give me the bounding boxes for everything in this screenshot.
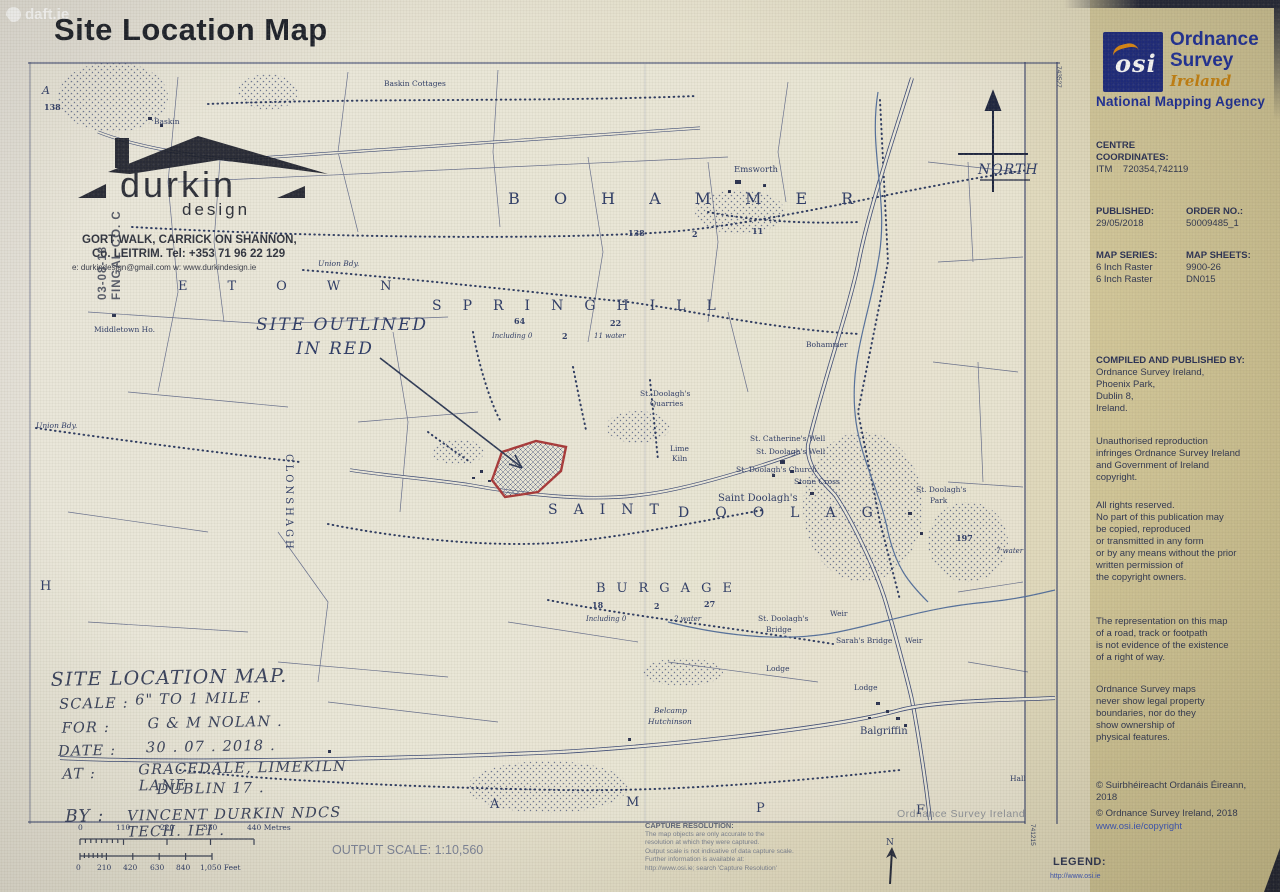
townland-letter-a: A: [489, 797, 500, 812]
townland-saint: SAINT: [548, 502, 675, 518]
feet-bar: [80, 853, 212, 860]
townland-letter-p: P: [756, 801, 765, 816]
compiled-line-4: Ireland.: [1096, 403, 1245, 415]
notes-value-at-2: DUBLIN 17 .: [157, 780, 265, 798]
capture-line-5: http://www.osi.ie; search 'Capture Resol…: [645, 865, 880, 874]
bound-line-4: show ownership of: [1096, 720, 1205, 732]
label-stone-cross: Stone Cross: [794, 477, 840, 486]
label-sarahs-bridge: Sarah's Bridge: [836, 636, 893, 645]
label-hall: Hall: [1010, 774, 1026, 783]
label-weir-2: Weir: [905, 636, 923, 645]
notes-label-scale: SCALE :: [59, 696, 129, 713]
published-label: PUBLISHED:: [1096, 206, 1154, 218]
capture-line-3: Output scale is not indicative of data c…: [645, 848, 880, 857]
legend-link: http://www.osi.ie: [1050, 873, 1101, 880]
map-series-block: MAP SERIES: 6 Inch Raster 6 Inch Raster: [1096, 250, 1158, 286]
output-scale-value: 1:10,560: [435, 843, 484, 857]
rights-notice: All rights reserved. No part of this pub…: [1096, 500, 1236, 584]
label-bohammer-house: Bohammer: [806, 340, 848, 349]
centre-heading-2: COORDINATES:: [1096, 152, 1188, 164]
num-7-water: 7 water: [996, 547, 1024, 555]
townland-letter-m: M: [626, 795, 639, 810]
site-note-line1: SITE OUTLINED: [256, 315, 428, 335]
osi-logo-word: osi: [1115, 58, 1157, 70]
bound-line-5: physical features.: [1096, 732, 1205, 744]
label-weir-1: Weir: [830, 609, 848, 618]
published-block: PUBLISHED: 29/05/2018: [1096, 206, 1154, 230]
notice-line-4: copyright.: [1096, 472, 1240, 484]
feet-420: 420: [123, 863, 138, 872]
itm-value: 720354,742119: [1123, 164, 1188, 175]
osi-wordmark: Ordnance Survey Ireland: [1170, 29, 1259, 92]
num-2: 2: [692, 229, 698, 239]
label-quarries-1: St. Doolagh's: [640, 389, 691, 398]
label-saint-doolaghs: Saint Doolagh's: [718, 493, 798, 504]
num-2b: 2: [562, 331, 568, 341]
osi-tagline: National Mapping Agency: [1096, 96, 1265, 108]
label-st-doolaghs-park-2: Park: [930, 496, 948, 505]
boundaries-notice: Ordnance Survey maps never show legal pr…: [1096, 684, 1205, 744]
label-balgriffin: Balgriffin: [860, 726, 908, 737]
scale-bars: 0 110 220 330 440 Metres 0 210 420 630 8…: [64, 820, 364, 890]
label-lime: Lime: [670, 444, 689, 453]
num-18: 18: [592, 600, 604, 610]
rights-line-7: the copyright owners.: [1096, 572, 1236, 584]
num-including-0b: Including 0: [585, 615, 627, 623]
order-block: ORDER NO.: 50009485_1: [1186, 206, 1243, 230]
rep-line-2: of a road, track or footpath: [1096, 628, 1229, 640]
output-scale-label: OUTPUT SCALE:: [332, 843, 431, 857]
label-middletown-ho: Middletown Ho.: [94, 325, 155, 334]
output-scale: OUTPUT SCALE: 1:10,560: [332, 843, 483, 857]
label-st-catherines-well: St. Catherine's Well: [750, 434, 826, 443]
compiled-block: COMPILED AND PUBLISHED BY: Ordnance Surv…: [1096, 355, 1245, 415]
notes-value-for: G & M NOLAN .: [147, 714, 283, 732]
notice-line-1: Unauthorised reproduction: [1096, 436, 1240, 448]
feet-0: 0: [76, 863, 81, 872]
rights-line-5: or by any means without the prior: [1096, 548, 1236, 560]
metres-0: 0: [78, 823, 83, 832]
metres-110: 110: [116, 823, 131, 832]
feet-630: 630: [150, 863, 165, 872]
osi-marginalia-panel: osi Ordnance Survey Ireland National Map…: [1094, 24, 1280, 884]
rights-line-4: or transmitted in any form: [1096, 536, 1236, 548]
map-sheets-value-2: DN015: [1186, 274, 1251, 286]
compiled-line-3: Dublin 8,: [1096, 391, 1245, 403]
label-hutchinson: Hutchinson: [647, 717, 692, 726]
label-st-doolaghs-bridge-2: Bridge: [766, 625, 792, 634]
notice-line-3: and Government of Ireland: [1096, 460, 1240, 472]
num-197: 197: [956, 533, 973, 543]
label-kiln: Kiln: [672, 454, 687, 463]
notes-value-date: 30 . 07 . 2018 .: [146, 738, 276, 756]
site-note-line2: IN RED: [295, 339, 374, 359]
label-st-doolaghs-bridge-1: St. Doolagh's: [758, 614, 809, 623]
centre-heading-1: CENTRE: [1096, 140, 1188, 152]
bound-line-1: Ordnance Survey maps: [1096, 684, 1205, 696]
label-st-doolaghs-well: St. Doolagh's Well: [756, 447, 826, 456]
capture-heading: CAPTURE RESOLUTION:: [645, 822, 880, 831]
num-including-0: Including 0: [491, 332, 533, 340]
rep-line-4: of a right of way.: [1096, 652, 1229, 664]
date-stamp-line1: 03-08-18: [96, 180, 110, 300]
rep-line-1: The representation on this map: [1096, 616, 1229, 628]
rights-line-2: No part of this publication may: [1096, 512, 1236, 524]
photo-edge-top: [1064, 0, 1280, 8]
num-2-water: 2 water: [673, 615, 702, 623]
rights-line-3: be copied, reproduced: [1096, 524, 1236, 536]
num-138-topleft: 138: [44, 102, 61, 112]
handwritten-notes: SITE LOCATION MAP. SCALE : 6" TO 1 MILE …: [37, 661, 400, 837]
page-title: Site Location Map: [54, 12, 328, 48]
order-value: 50009485_1: [1186, 218, 1243, 230]
label-lodge-1: Lodge: [766, 664, 790, 673]
townland-bohammer: BOHAMMER: [508, 189, 887, 208]
label-emsworth: Emsworth: [734, 165, 778, 175]
num-11-water: 11 water: [594, 332, 626, 340]
metres-440: 440 Metres: [247, 823, 291, 832]
notes-heading: SITE LOCATION MAP.: [51, 665, 288, 691]
label-st-doolaghs-park-1: St. Doolagh's: [916, 485, 967, 494]
label-baskin: Baskin: [154, 117, 180, 126]
metres-330: 330: [203, 823, 218, 832]
label-belcamp: Belcamp: [653, 706, 687, 715]
num-64: 64: [514, 316, 526, 326]
svg-text:N: N: [886, 838, 894, 848]
townland-springhill: SPRINGHILL: [432, 298, 737, 314]
osi-wordmark-line2: Survey: [1170, 50, 1259, 71]
map-sheets-label: MAP SHEETS:: [1186, 250, 1251, 262]
label-union-bdy-2: Union Bdy.: [36, 421, 77, 430]
num-2c: 2: [654, 601, 660, 611]
feet-1050: 1,050 Feet: [200, 863, 241, 872]
label-quarries-2: Quarries: [650, 399, 683, 408]
notes-label-for: FOR :: [61, 720, 110, 737]
copyright-irish-line-1: © Suirbhéireacht Ordanáis Éireann,: [1096, 780, 1246, 792]
centre-coordinates: CENTRE COORDINATES: ITM 720354,742119: [1096, 140, 1188, 176]
notes-label-at: AT :: [62, 766, 96, 783]
compiled-label: COMPILED AND PUBLISHED BY:: [1096, 355, 1245, 367]
unauthorised-notice: Unauthorised reproduction infringes Ordn…: [1096, 436, 1240, 484]
metres-bar: [80, 839, 254, 845]
feet-210: 210: [97, 863, 112, 872]
date-stamp-line2: FINGAL CO. C: [110, 180, 124, 300]
stamp-sub: design: [182, 200, 250, 220]
osi-map-watermark: Ordnance Survey Ireland: [897, 808, 1025, 820]
capture-line-4: Further information is available at:: [645, 856, 880, 865]
metres-220: 220: [160, 823, 175, 832]
feet-840: 840: [176, 863, 191, 872]
townland-letter-a2: A: [41, 84, 50, 97]
num-11: 11: [752, 226, 763, 236]
photo-edge-right: [1274, 0, 1280, 120]
daft-logo-icon: [6, 7, 21, 22]
townland-burgage: BURGAGE: [596, 581, 743, 596]
map-series-label: MAP SERIES:: [1096, 250, 1158, 262]
notes-label-date: DATE :: [58, 743, 117, 760]
map-sheets-value-1: 9900-26: [1186, 262, 1251, 274]
rep-line-3: is not evidence of the existence: [1096, 640, 1229, 652]
edge-coordinate-bottom: 741215: [1029, 824, 1036, 846]
compiled-line-2: Phoenix Park,: [1096, 379, 1245, 391]
itm-label: ITM: [1096, 164, 1112, 175]
rights-line-1: All rights reserved.: [1096, 500, 1236, 512]
num-27: 27: [704, 599, 715, 609]
map-series-value-1: 6 Inch Raster: [1096, 262, 1158, 274]
rights-line-6: written permission of: [1096, 560, 1236, 572]
osi-logo: osi: [1103, 32, 1163, 92]
label-lodge-2: Lodge: [854, 683, 878, 692]
num-22: 22: [610, 318, 621, 328]
bound-line-3: boundaries, nor do they: [1096, 708, 1205, 720]
notice-line-2: infringes Ordnance Survey Ireland: [1096, 448, 1240, 460]
photographed-map-sheet: SITE OUTLINED IN RED NORTH BOHAMMER SPRI…: [0, 0, 1280, 892]
capture-line-1: The map objects are only accurate to the: [645, 831, 880, 840]
label-st-doolaghs-church: St. Doolagh's Church: [736, 465, 817, 474]
townland-etown-partial: ETOWN: [178, 279, 432, 294]
copyright-english: © Ordnance Survey Ireland, 2018: [1096, 808, 1238, 820]
compiled-line-1: Ordnance Survey Ireland,: [1096, 367, 1245, 379]
edge-coordinate-top: 743527: [1055, 66, 1062, 88]
order-label: ORDER NO.:: [1186, 206, 1243, 218]
copyright-irish: © Suirbhéireacht Ordanáis Éireann, 2018: [1096, 780, 1246, 804]
num-138: 138: [628, 228, 645, 238]
townland-doolagh: DOOLAG: [678, 505, 899, 521]
map-sheets-block: MAP SHEETS: 9900-26 DN015: [1186, 250, 1251, 286]
townland-clonshagh: CLONSHAGH: [283, 454, 294, 552]
copyright-irish-line-2: 2018: [1096, 792, 1246, 804]
label-baskin-cottages: Baskin Cottages: [384, 79, 446, 88]
copyright-link: www.osi.ie/copyright: [1096, 821, 1182, 833]
bound-line-2: never show legal property: [1096, 696, 1205, 708]
capture-resolution-note: CAPTURE RESOLUTION: The map objects are …: [645, 822, 880, 874]
osi-wordmark-line1: Ordnance: [1170, 29, 1259, 50]
published-value: 29/05/2018: [1096, 218, 1154, 230]
osi-wordmark-ireland: Ireland: [1170, 71, 1259, 92]
north-label: NORTH: [977, 162, 1039, 178]
townland-letter-h: H: [40, 579, 51, 594]
notes-value-scale: 6" TO 1 MILE .: [135, 690, 263, 708]
printed-north-icon: N: [878, 834, 908, 890]
fingal-date-stamp: 03-08-18 FINGAL CO. C: [96, 180, 124, 300]
map-series-value-2: 6 Inch Raster: [1096, 274, 1158, 286]
capture-line-2: resolution at which they were captured.: [645, 839, 880, 848]
representation-notice: The representation on this map of a road…: [1096, 616, 1229, 664]
